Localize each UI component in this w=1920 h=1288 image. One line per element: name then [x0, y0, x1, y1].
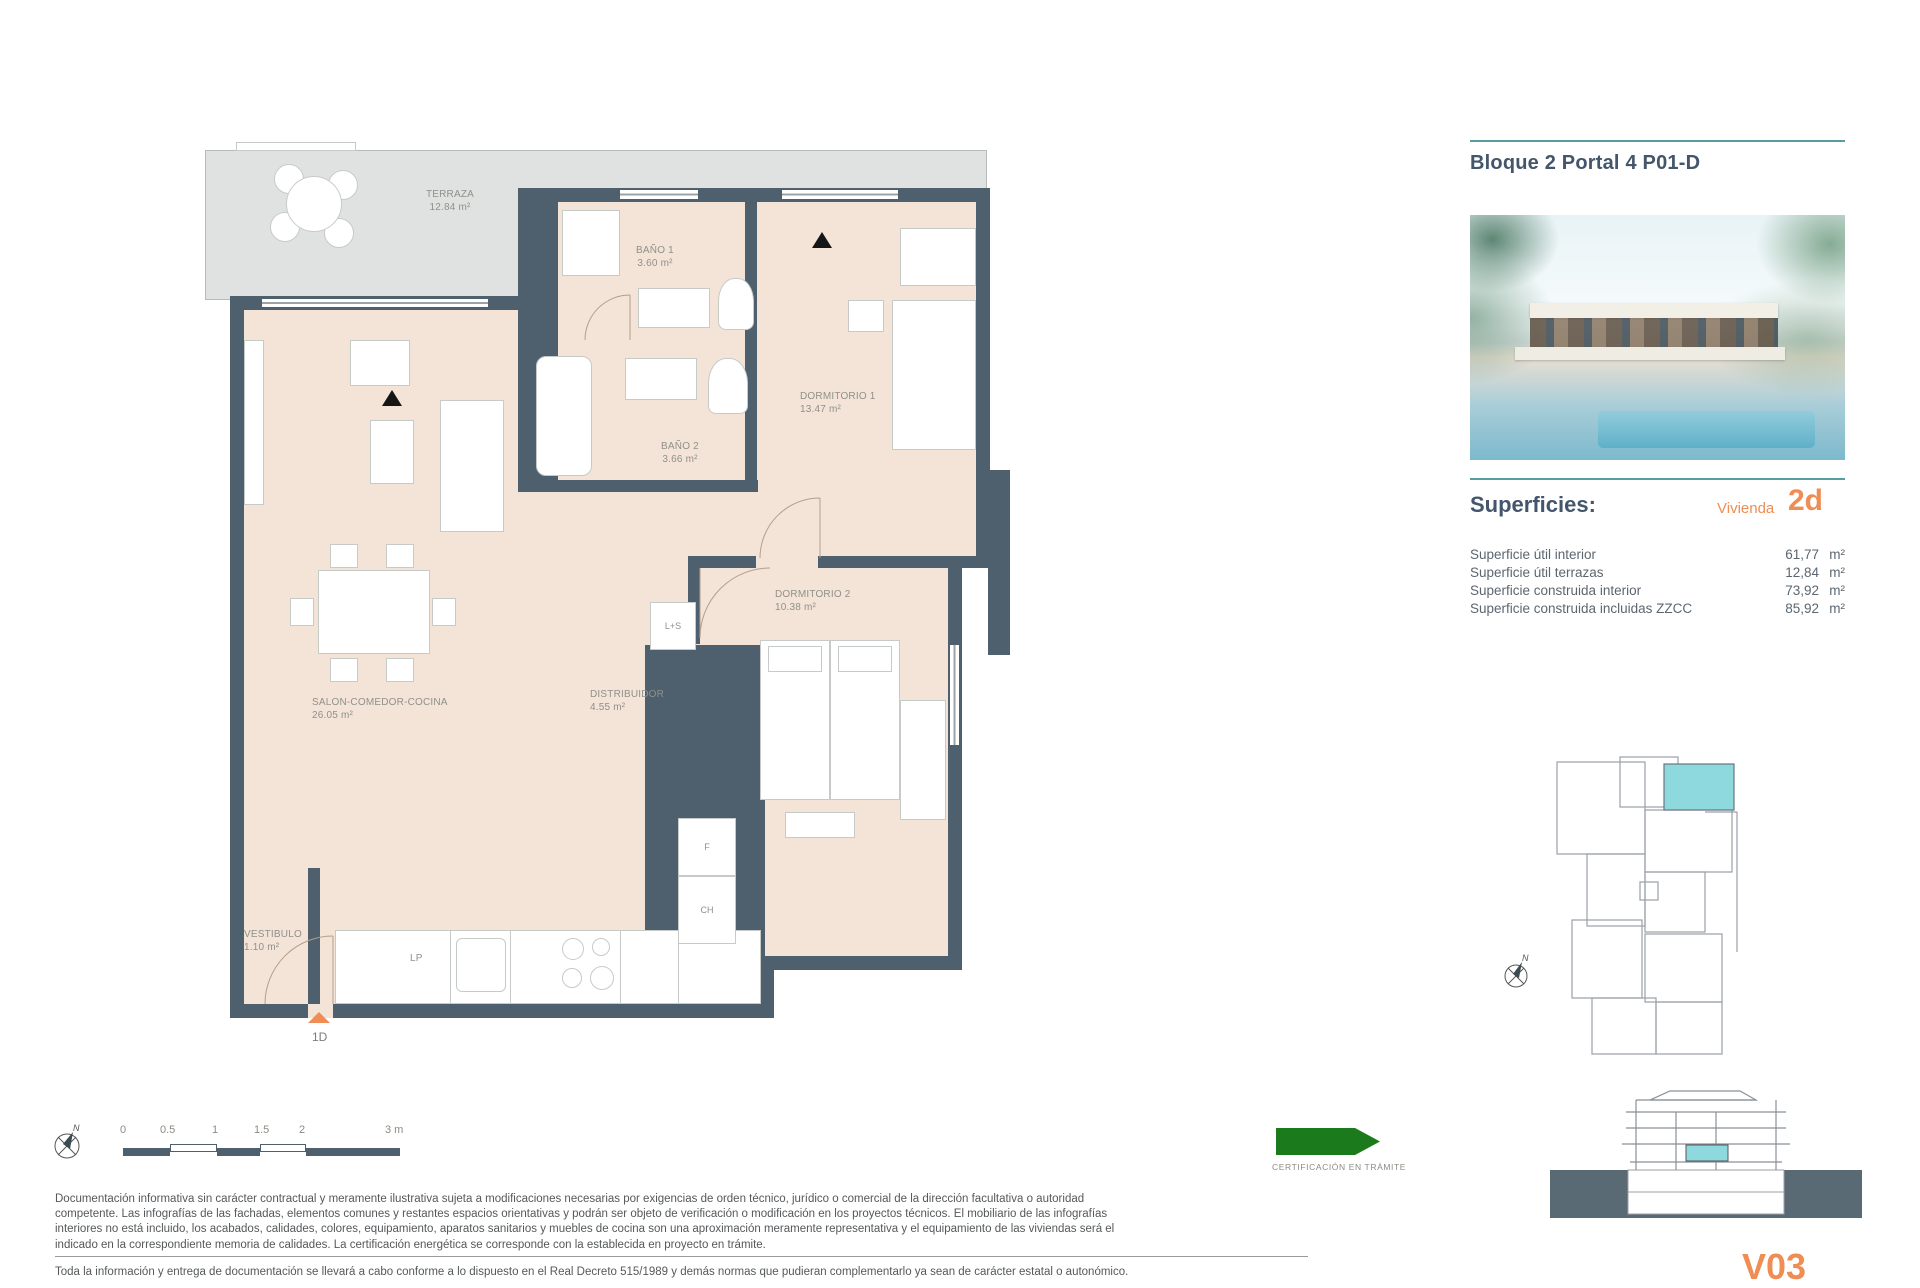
scale-bar-segment: [260, 1144, 306, 1152]
superficie-value: 61,77: [1767, 546, 1819, 564]
hob-burner: [562, 968, 582, 988]
legal-paragraph-2: Toda la información y entrega de documen…: [55, 1265, 1255, 1280]
dining-chair: [290, 598, 314, 626]
wall-segment: [518, 480, 758, 492]
hob-burner: [562, 938, 584, 960]
armchair: [350, 340, 410, 386]
floor-plan: L+S F CH TERRAZA 12.84 m² BAÑO 1 3.60 m²…: [200, 140, 1080, 1070]
box-ch-label: CH: [678, 876, 736, 944]
superficie-value: 73,92: [1767, 582, 1819, 600]
scale-tick-label: 0.5: [160, 1124, 175, 1136]
kitchen-sink: [456, 938, 506, 992]
superficie-label: Superficie construida interior: [1470, 582, 1767, 600]
window: [620, 190, 698, 199]
counter-line: [510, 930, 511, 1004]
door-opening: [756, 556, 818, 568]
scale-tick-label: 0: [120, 1124, 126, 1136]
label-vestibulo: VESTIBULO 1.10 m²: [244, 928, 306, 954]
dining-chair: [386, 658, 414, 682]
wall-segment: [333, 1004, 773, 1018]
scale-tick-label: 1.5: [254, 1124, 269, 1136]
superficie-row: Superficie útil interior 61,77 m²: [1470, 546, 1845, 564]
bathtub: [536, 356, 592, 476]
render-building-slab: [1515, 347, 1785, 359]
superficie-unit: m²: [1819, 600, 1845, 618]
render-pool: [1598, 411, 1816, 448]
window: [262, 299, 488, 307]
coffee-table: [370, 420, 414, 484]
label-terraza: TERRAZA 12.84 m²: [395, 188, 505, 214]
hob-burner: [592, 938, 610, 956]
dining-chair: [330, 658, 358, 682]
compass-icon: N: [50, 1122, 86, 1162]
stair-core: [988, 470, 1010, 655]
dining-chair: [330, 544, 358, 568]
dining-table: [318, 570, 430, 654]
terrace-table: [286, 176, 342, 232]
pillow: [768, 646, 822, 672]
vivienda-code: 2d: [1788, 484, 1823, 518]
legal-divider: [55, 1256, 1308, 1257]
superficie-row: Superficie construida incluidas ZZCC 85,…: [1470, 600, 1845, 618]
elevation-unit-highlight: [1686, 1145, 1728, 1161]
render-building-slab: [1530, 303, 1778, 318]
certification-arrow-icon: [1276, 1128, 1380, 1155]
window: [950, 645, 959, 745]
superficie-unit: m²: [1819, 582, 1845, 600]
page-title: Bloque 2 Portal 4 P01-D: [1470, 152, 1850, 175]
superficie-row: Superficie construida interior 73,92 m²: [1470, 582, 1845, 600]
dining-chair: [432, 598, 456, 626]
superficie-label: Superficie construida incluidas ZZCC: [1470, 600, 1767, 618]
compass-icon: N: [1500, 952, 1534, 992]
header-rule: [1470, 140, 1845, 142]
compass-n-label: N: [73, 1123, 80, 1133]
superficie-value: 85,92: [1767, 600, 1819, 618]
wardrobe-dorm1: [900, 228, 976, 286]
label-dormitorio2: DORMITORIO 2 10.38 m²: [775, 588, 885, 614]
key-plan-diagram: [1552, 752, 1747, 1064]
label-bano2: BAÑO 2 3.66 m²: [630, 440, 730, 466]
bench: [785, 812, 855, 838]
superficies-heading: Superficies:: [1470, 492, 1596, 518]
vivienda-label: Vivienda: [1717, 500, 1774, 517]
scale-bar-segment: [123, 1148, 170, 1156]
render-building-facade: [1530, 318, 1778, 347]
wall-segment: [538, 188, 990, 202]
superficie-row: Superficie útil terrazas 12,84 m²: [1470, 564, 1845, 582]
label-distribuidor: DISTRIBUIDOR 4.55 m²: [590, 688, 680, 714]
certification-label: CERTIFICACIÓN EN TRÁMITE: [1272, 1162, 1406, 1172]
wall-segment: [688, 556, 990, 568]
superficie-label: Superficie útil terrazas: [1470, 564, 1767, 582]
building-render-image: [1470, 215, 1845, 460]
pillow: [838, 646, 892, 672]
superficies-rule: [1470, 478, 1845, 480]
bath1-toilet: [718, 278, 754, 330]
dining-chair: [386, 544, 414, 568]
scale-bar-segment: [170, 1144, 217, 1152]
superficie-unit: m²: [1819, 564, 1845, 582]
entry-marker-label: 1D: [312, 1030, 327, 1044]
scale-tick-label: 1: [212, 1124, 218, 1136]
counter-line: [620, 930, 621, 1004]
legal-paragraph-1: Documentación informativa sin carácter c…: [55, 1192, 1147, 1253]
label-bano1: BAÑO 1 3.60 m²: [605, 244, 705, 270]
label-dormitorio1: DORMITORIO 1 13.47 m²: [800, 390, 910, 416]
plan-triangle-marker: [812, 232, 832, 248]
bath2-vanity: [625, 358, 697, 400]
entry-marker-icon: [308, 1012, 330, 1023]
scale-bar-segment: [217, 1148, 260, 1156]
label-lp: LP: [410, 952, 440, 965]
superficie-value: 12,84: [1767, 564, 1819, 582]
superficie-label: Superficie útil interior: [1470, 546, 1767, 564]
wall-segment: [308, 868, 320, 1004]
superficie-unit: m²: [1819, 546, 1845, 564]
counter-line: [450, 930, 451, 1004]
wall-segment: [948, 568, 962, 968]
box-f-label: F: [678, 818, 736, 876]
nightstand: [848, 300, 884, 332]
closet-ls-label: L+S: [650, 602, 696, 650]
version-label: V03: [1742, 1246, 1806, 1288]
plan-triangle-marker: [382, 390, 402, 406]
bath2-toilet: [708, 358, 748, 414]
wall-segment: [745, 202, 757, 492]
wall-segment: [230, 296, 244, 1018]
wardrobe-dorm2: [900, 700, 946, 820]
scale-tick-label: 3 m: [385, 1124, 403, 1136]
bath1-vanity: [638, 288, 710, 328]
key-plan-unit-highlight: [1664, 764, 1734, 810]
label-salon: SALON-COMEDOR-COCINA 26.05 m²: [312, 696, 452, 722]
window: [782, 190, 898, 199]
scale-tick-label: 2: [299, 1124, 305, 1136]
tv-unit: [244, 340, 264, 505]
hob-burner: [590, 966, 614, 990]
terrace-planter: [236, 142, 356, 151]
elevation-diagram: [1550, 1082, 1862, 1232]
compass-n-label: N: [1522, 953, 1529, 963]
scale-bar-segment: [306, 1148, 400, 1156]
sofa: [440, 400, 504, 532]
bed-dorm1: [892, 300, 976, 450]
